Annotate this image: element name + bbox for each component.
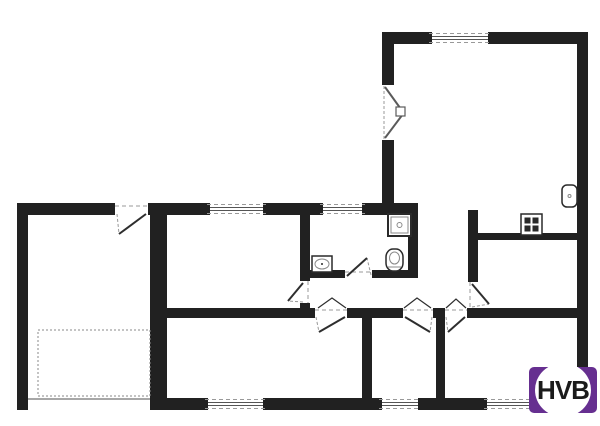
wall-garage-right — [150, 203, 167, 410]
chimney-flue — [533, 218, 539, 224]
door-swing-garage-entry — [117, 214, 119, 234]
chimney-flue — [533, 226, 539, 232]
opening-garage-entry — [115, 203, 148, 215]
door-swing-room-c — [430, 317, 432, 332]
hvb-logo: HVB — [529, 367, 597, 413]
door-leaf-room-d — [448, 317, 465, 332]
door-swing-room-b — [316, 317, 319, 332]
wall-left-exterior — [17, 203, 28, 410]
opening-garage-door — [28, 398, 150, 410]
floor-plan-image: HVB — [0, 0, 600, 426]
parking-area-outline — [38, 330, 150, 396]
floor-plan — [0, 0, 600, 426]
chimney-flue — [525, 218, 531, 224]
door-leaf-room-b — [319, 317, 345, 332]
door-vee-mark — [404, 298, 431, 308]
sink-drain — [321, 263, 323, 265]
wall-right-exterior — [577, 32, 588, 410]
door-vee-mark — [446, 299, 466, 308]
door-leaf-room-c — [405, 317, 430, 332]
hand-basin-icon — [562, 185, 577, 207]
door-vee-mark — [318, 298, 346, 308]
french-door-knob — [396, 107, 405, 116]
chimney-icon — [521, 214, 542, 235]
chimney-flue — [525, 226, 531, 232]
door-swing-room-d — [446, 317, 448, 332]
wall-room-cd-divider — [436, 308, 445, 410]
door-leaf-garage-entry — [119, 214, 146, 234]
hvb-logo-text: HVB — [529, 367, 597, 413]
wall-room-bc-divider — [362, 308, 372, 410]
